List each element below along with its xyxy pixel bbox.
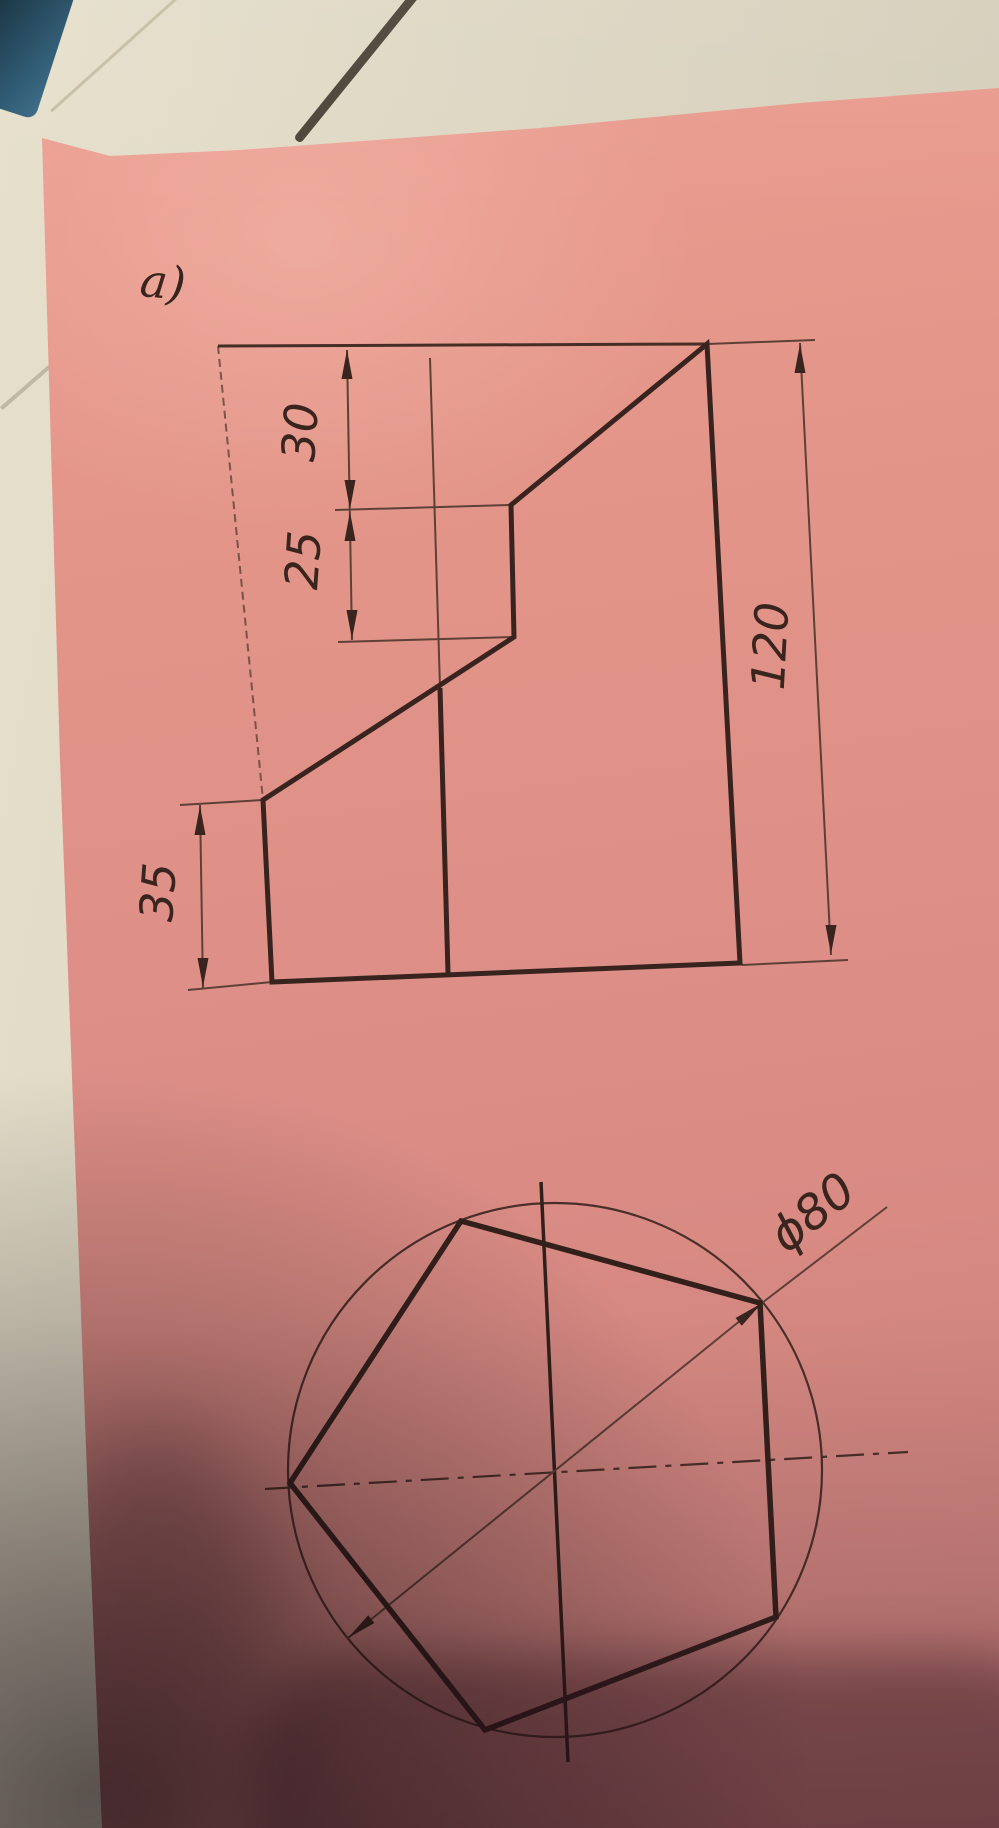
visible-outline (263, 344, 740, 982)
figure-label: а) (138, 253, 189, 311)
horizontal-centerline (265, 1452, 908, 1489)
front-view-drawing: 30 25 35 120 (129, 340, 848, 990)
dimension-label-120: 120 (741, 601, 800, 692)
inner-vertical-edge (440, 688, 448, 973)
diameter-label: ϕ80 (759, 1162, 866, 1264)
photo-of-drawing-sheet: 30 25 35 120 ϕ80 а) (0, 0, 999, 1828)
hidden-left-edge (218, 346, 263, 800)
dimension-label-35: 35 (129, 861, 187, 923)
dimension-label-30: 30 (271, 401, 329, 463)
top-edge (218, 344, 707, 346)
dimension-label-25: 25 (274, 529, 332, 591)
phone-shadow (250, 1655, 999, 1828)
paper-sheet: 30 25 35 120 ϕ80 а) (0, 0, 999, 1828)
pentagon-outline (290, 1221, 776, 1730)
